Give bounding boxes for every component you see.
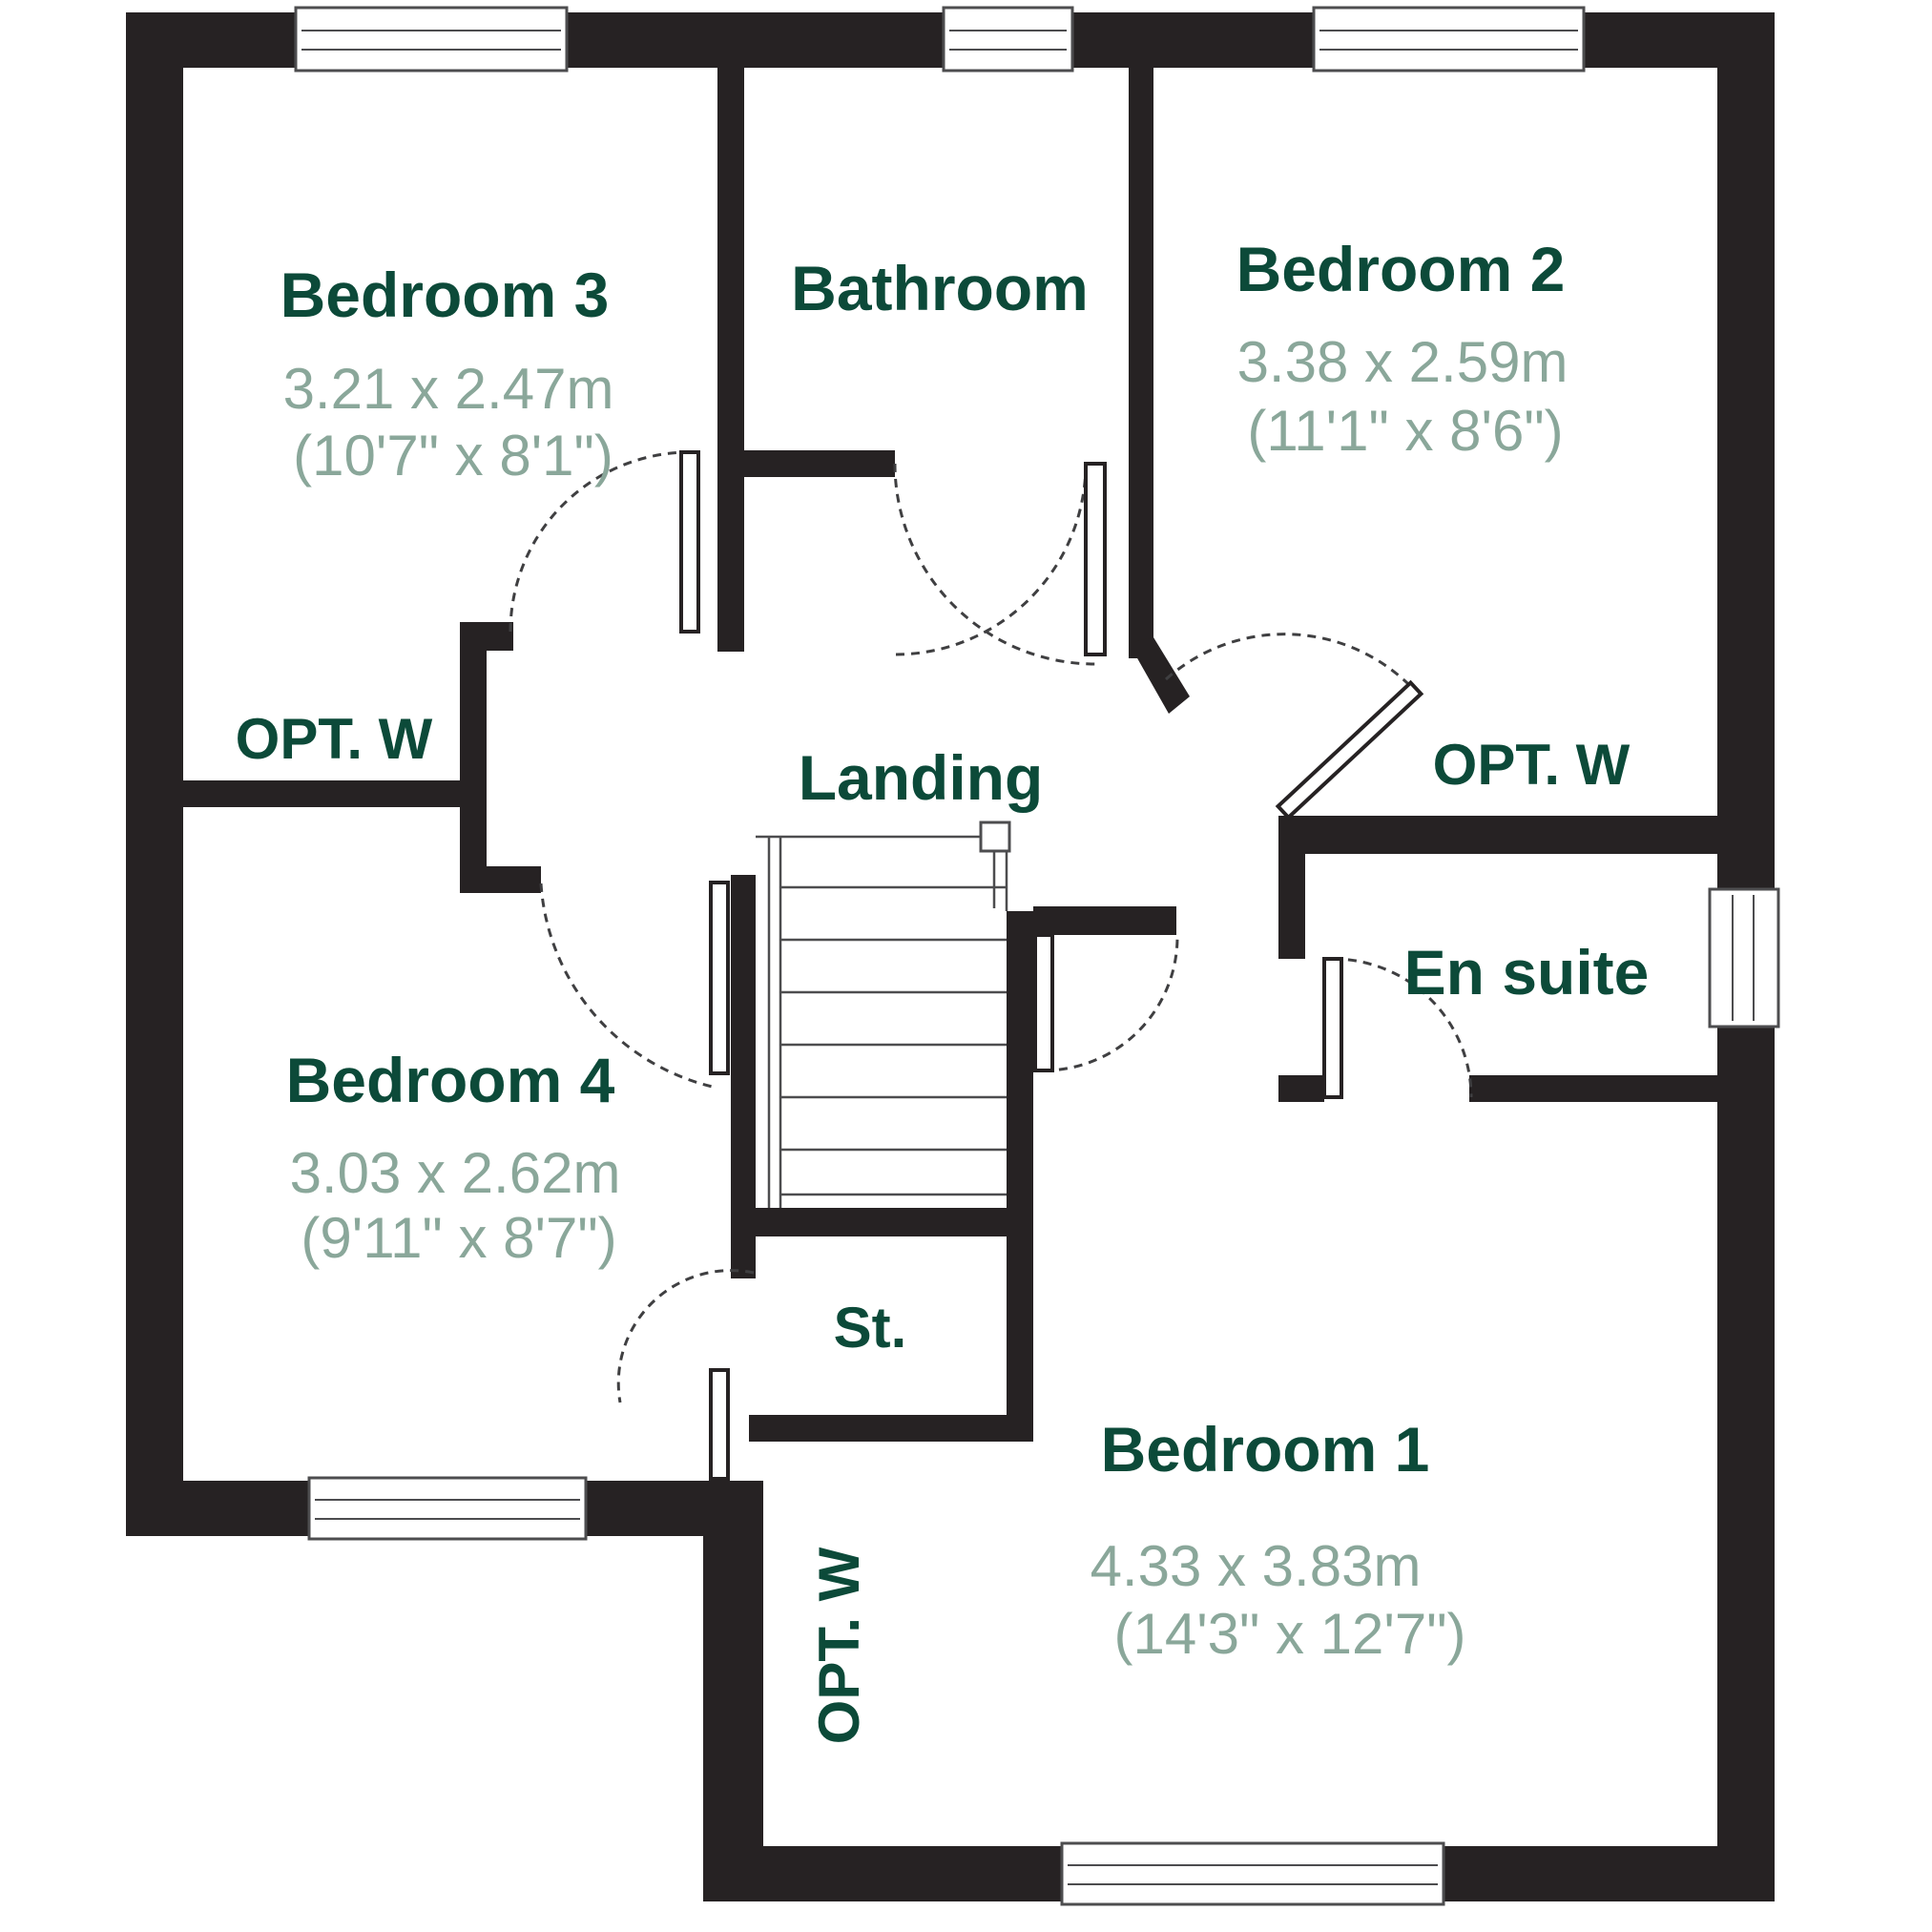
bedroom2-metric: 3.38 x 2.59m	[1237, 330, 1568, 394]
window-bedroom2	[1314, 8, 1584, 71]
doors	[510, 452, 1471, 1479]
wall-ensuite-bottom-stub	[1278, 1075, 1324, 1102]
wall-top-3	[1072, 12, 1314, 68]
stair-newel-post	[981, 822, 1009, 851]
bedroom4-imperial: (9'11" x 8'7")	[301, 1206, 616, 1270]
wall-stair-right	[1007, 911, 1033, 1442]
wall-stair-bottom	[731, 1208, 1033, 1236]
wall-bottom-2	[1444, 1846, 1775, 1901]
bedroom4-metric: 3.03 x 2.62m	[290, 1141, 621, 1205]
opt-w-bottom-label: OPT. W	[807, 1547, 871, 1744]
bedroom2-name: Bedroom 2	[1236, 234, 1566, 304]
window-bathroom	[944, 8, 1072, 71]
wall-optw-left-divider	[126, 780, 467, 807]
bedroom3-name: Bedroom 3	[280, 260, 610, 330]
bedroom1-name: Bedroom 1	[1101, 1414, 1430, 1485]
ensuite-name: En suite	[1404, 937, 1650, 1008]
wall-bottom-1	[703, 1846, 1062, 1901]
window-bedroom1	[1062, 1843, 1444, 1904]
bathroom-name: Bathroom	[791, 253, 1089, 323]
wall-top-2	[567, 12, 944, 68]
wall-bed4-door-stub	[460, 866, 541, 893]
wall-ensuite-left	[1278, 816, 1305, 959]
door-bedroom1	[1035, 935, 1177, 1070]
store-name: St.	[834, 1296, 907, 1360]
wall-bed4-bottom-1	[126, 1481, 309, 1536]
wall-left	[126, 12, 183, 1536]
window-ensuite	[1710, 889, 1778, 1027]
bedroom4-name: Bedroom 4	[286, 1045, 615, 1115]
wall-stair-left	[731, 875, 756, 1236]
floor-plan: Bedroom 3 3.21 x 2.47m (10'7" x 8'1") Ba…	[0, 0, 1932, 1932]
wall-landing-left	[460, 622, 487, 872]
wall-bathroom-bottom-stub	[717, 450, 895, 477]
wall-diagonal-stub	[1129, 637, 1190, 714]
wall-ensuite-bottom	[1469, 1075, 1717, 1102]
bedroom2-imperial: (11'1" x 8'6")	[1247, 399, 1563, 463]
door-store	[618, 1271, 754, 1479]
landing-name: Landing	[799, 742, 1044, 813]
door-bedroom2	[1166, 634, 1421, 818]
floor-plan-svg: Bedroom 3 3.21 x 2.47m (10'7" x 8'1") Ba…	[0, 0, 1932, 1932]
opt-w-left-label: OPT. W	[236, 707, 433, 771]
window-bedroom3	[296, 8, 567, 71]
opt-w-right-label: OPT. W	[1433, 733, 1631, 797]
staircase	[756, 822, 1009, 1208]
wall-right-lower	[1717, 1024, 1775, 1901]
wall-ensuite-top	[1278, 816, 1717, 854]
bedroom3-imperial: (10'7" x 8'1")	[293, 424, 613, 488]
wall-landing-bed1	[1033, 906, 1176, 935]
wall-store-bottom	[749, 1415, 1019, 1442]
wall-bathroom-left	[717, 68, 744, 652]
door-bathroom	[895, 464, 1105, 664]
wall-bathroom-right	[1129, 68, 1153, 658]
bedroom1-metric: 4.33 x 3.83m	[1091, 1534, 1422, 1598]
wall-right-upper	[1717, 12, 1775, 892]
window-bedroom4	[309, 1478, 586, 1539]
wall-lower-left	[703, 1481, 763, 1901]
bedroom3-metric: 3.21 x 2.47m	[283, 357, 614, 421]
bedroom1-imperial: (14'3" x 12'7")	[1113, 1602, 1465, 1666]
